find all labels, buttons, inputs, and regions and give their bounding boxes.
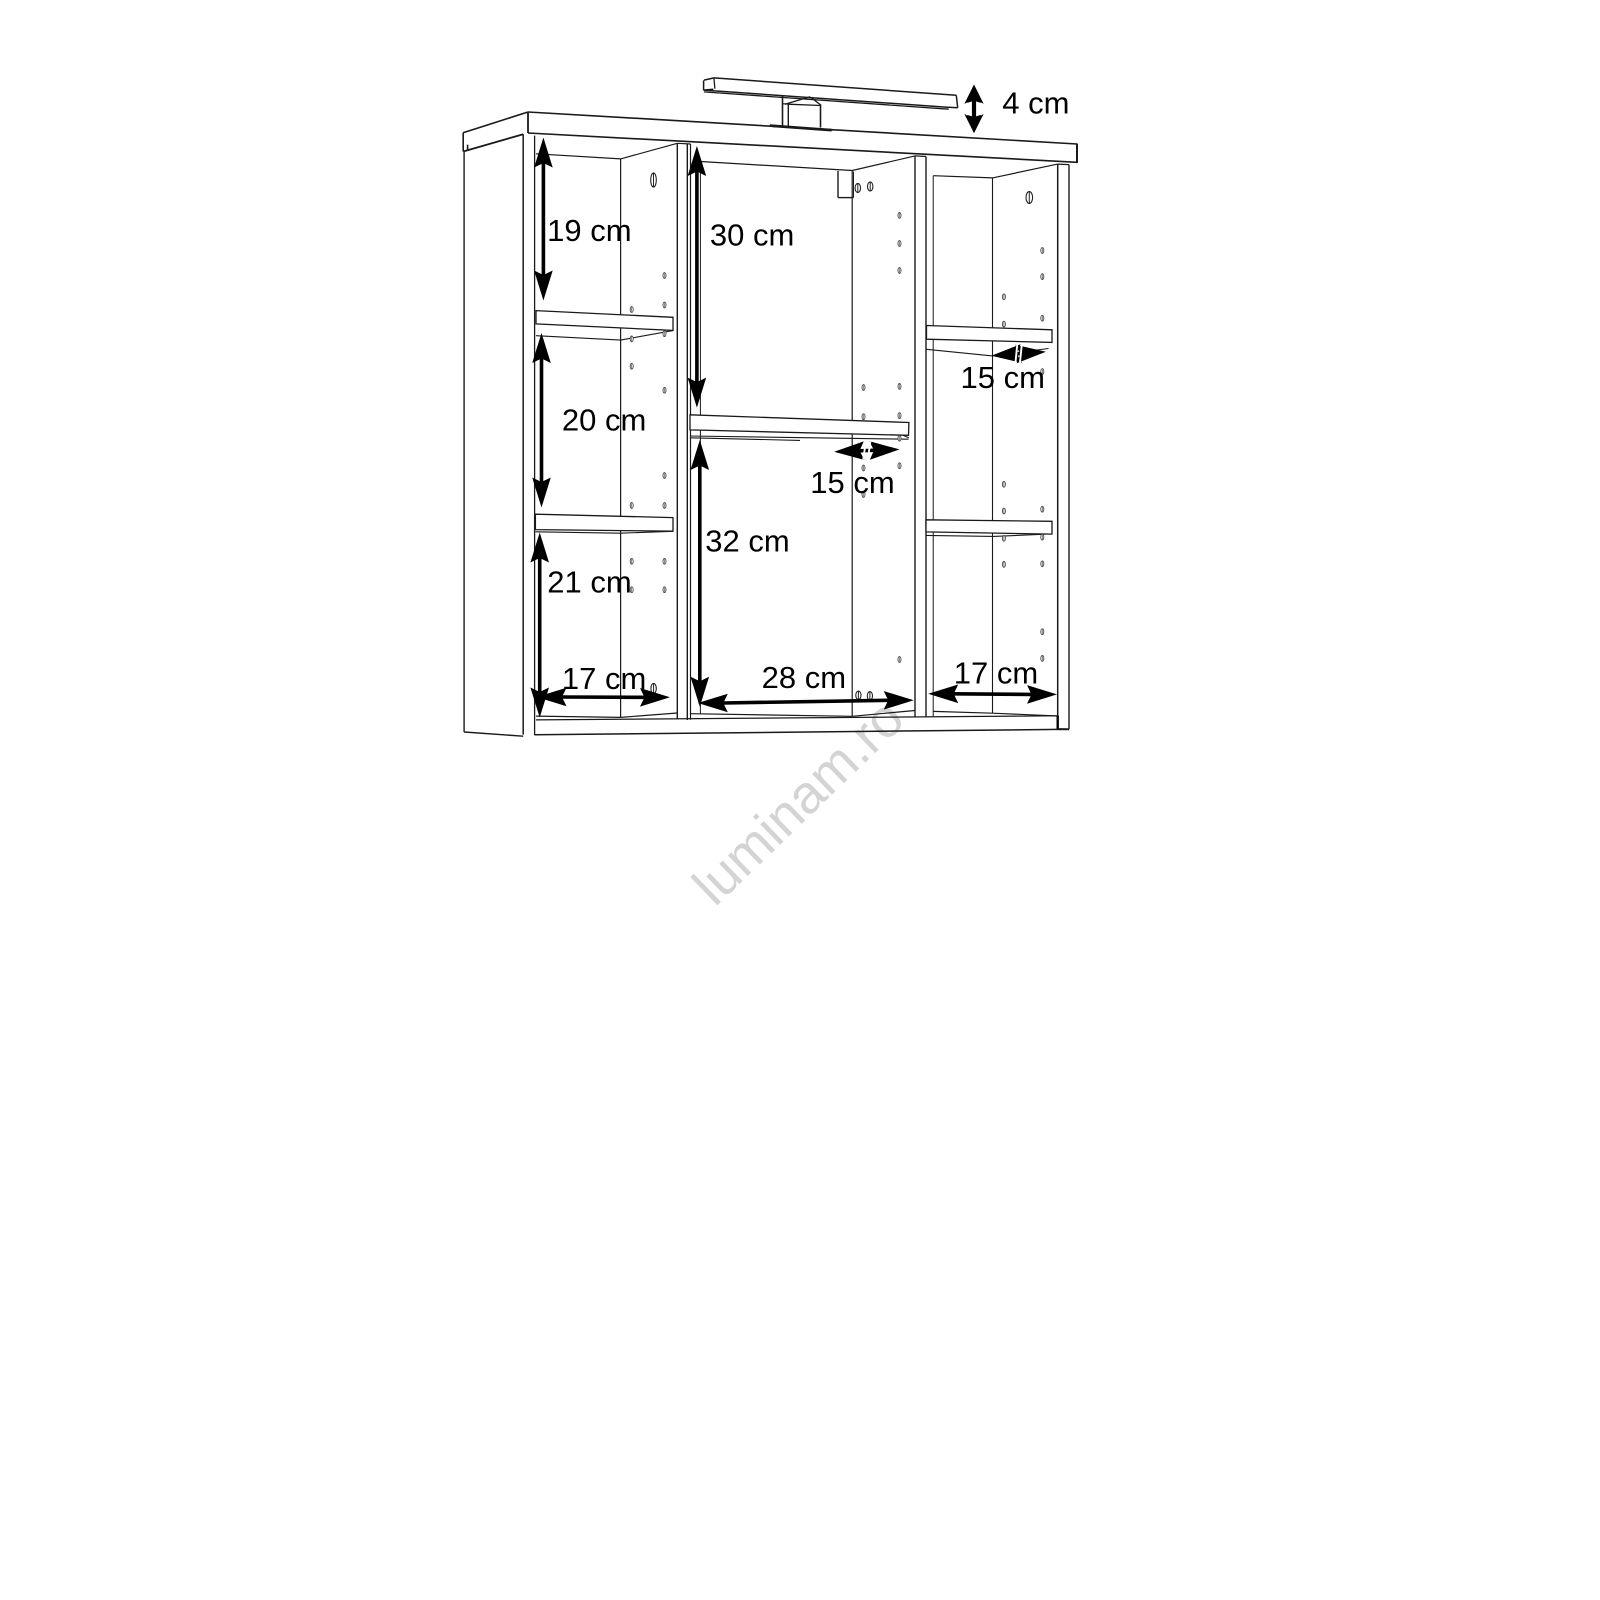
svg-text:17 cm: 17 cm — [954, 656, 1038, 691]
svg-text:15 cm: 15 cm — [810, 465, 894, 500]
svg-text:32 cm: 32 cm — [705, 523, 789, 558]
svg-text:19 cm: 19 cm — [547, 213, 631, 248]
svg-text:21 cm: 21 cm — [547, 565, 631, 600]
svg-text:15 cm: 15 cm — [961, 360, 1045, 395]
svg-text:17 cm: 17 cm — [562, 661, 646, 696]
svg-text:30 cm: 30 cm — [710, 217, 794, 252]
svg-text:28 cm: 28 cm — [762, 660, 846, 695]
svg-text:20 cm: 20 cm — [562, 402, 646, 437]
svg-text:4 cm: 4 cm — [1002, 86, 1069, 121]
